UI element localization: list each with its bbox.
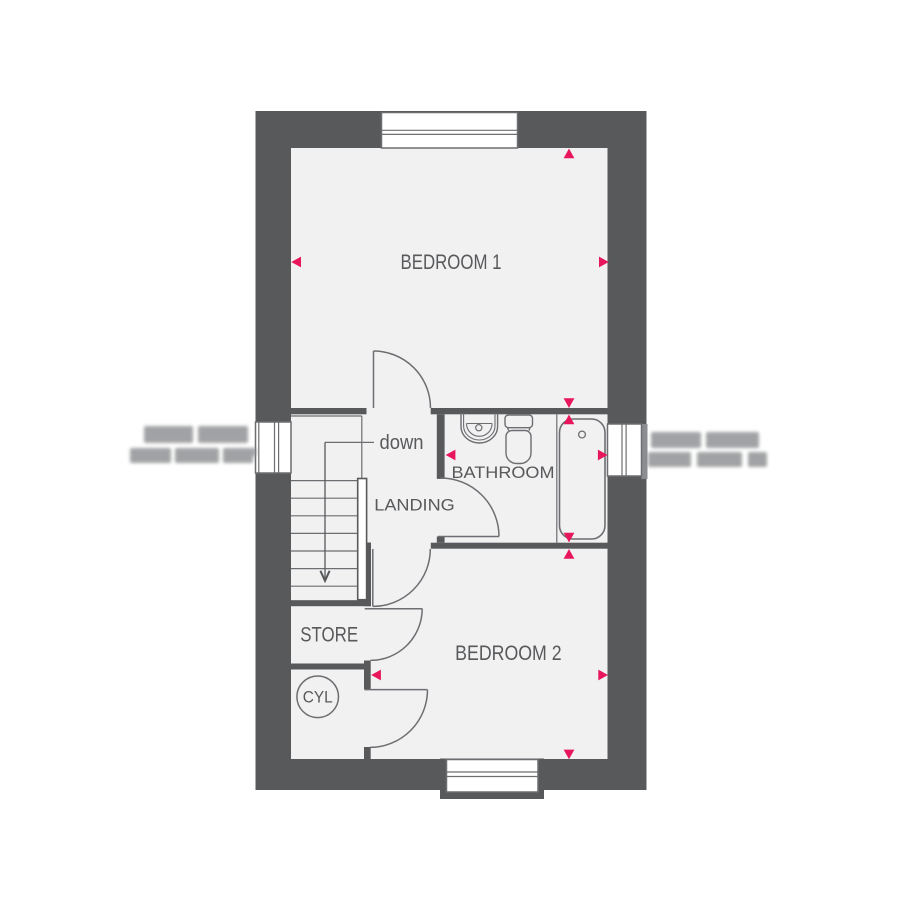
svg-text:LANDING: LANDING bbox=[374, 496, 455, 515]
svg-text:down: down bbox=[380, 432, 424, 454]
svg-text:BEDROOM 1: BEDROOM 1 bbox=[401, 250, 502, 274]
svg-text:STORE: STORE bbox=[300, 623, 358, 646]
svg-text:BATHROOM: BATHROOM bbox=[452, 463, 555, 482]
svg-text:BEDROOM 2: BEDROOM 2 bbox=[455, 641, 562, 665]
svg-text:CYL: CYL bbox=[303, 689, 333, 707]
